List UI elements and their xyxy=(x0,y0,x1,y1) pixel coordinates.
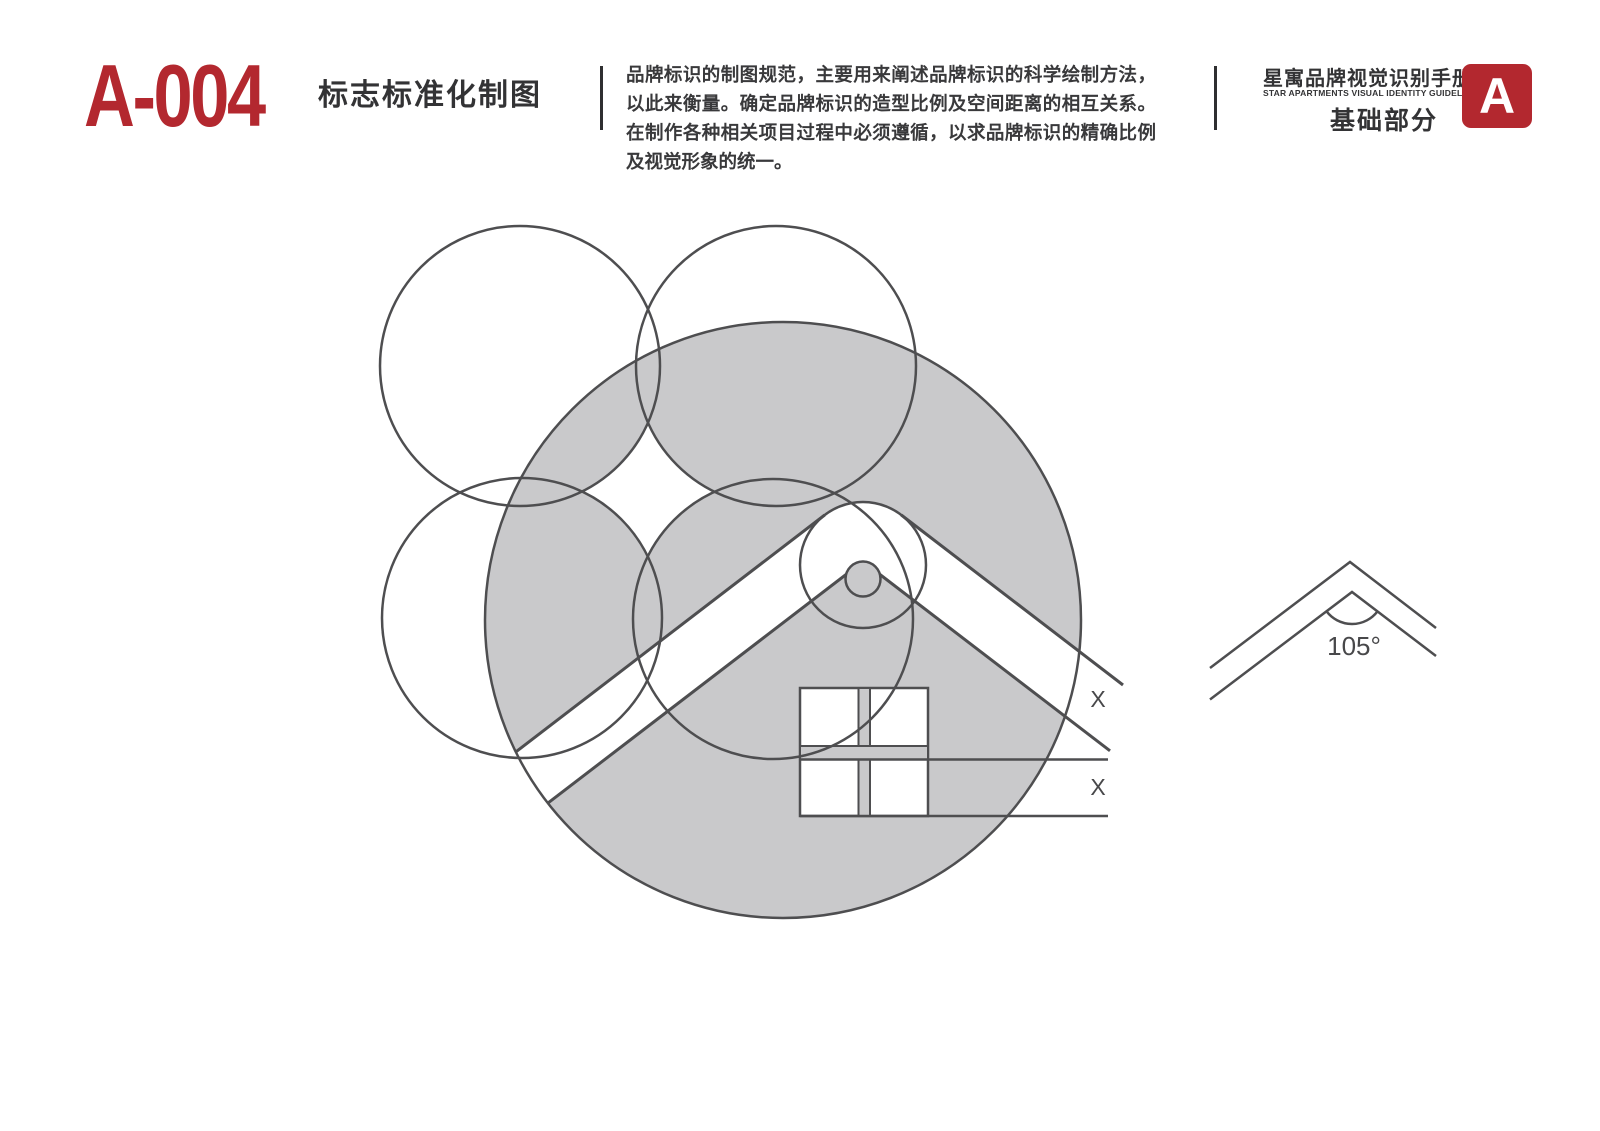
header-divider-left xyxy=(600,66,603,130)
manual-title-en: STAR APARTMENTS VISUAL IDENTITY GUIDELIN… xyxy=(1263,88,1441,98)
angle-arc xyxy=(1327,611,1378,624)
page-code: A-004 xyxy=(84,52,264,140)
section-badge-letter: A xyxy=(1479,71,1515,121)
angle-detail: 105° xyxy=(1210,562,1436,700)
apex-dot-circle xyxy=(846,562,881,597)
page-header: A-004 标志标准化制图 品牌标识的制图规范，主要用来阐述品牌标识的科学绘制方… xyxy=(0,0,1600,160)
angle-inner-chevron xyxy=(1210,592,1436,700)
window-mullion-horizontal xyxy=(800,746,928,760)
page-description: 品牌标识的制图规范，主要用来阐述品牌标识的科学绘制方法，以此来衡量。确定品牌标识… xyxy=(626,60,1156,176)
angle-label: 105° xyxy=(1327,631,1381,661)
dimension-label-x2: X xyxy=(1090,774,1105,800)
page-title: 标志标准化制图 xyxy=(318,70,542,114)
section-badge: A xyxy=(1462,64,1532,128)
manual-title-zh: 星寓品牌视觉识别手册 xyxy=(1263,62,1441,91)
header-divider-right xyxy=(1214,66,1217,130)
dimension-label-x1: X xyxy=(1090,686,1105,712)
vi-manual-page: X X 105° A-004 标志标准化制图 品牌标识的制图规范，主要用来阐述品… xyxy=(0,0,1600,1131)
section-label: 基础部分 xyxy=(1263,101,1438,137)
